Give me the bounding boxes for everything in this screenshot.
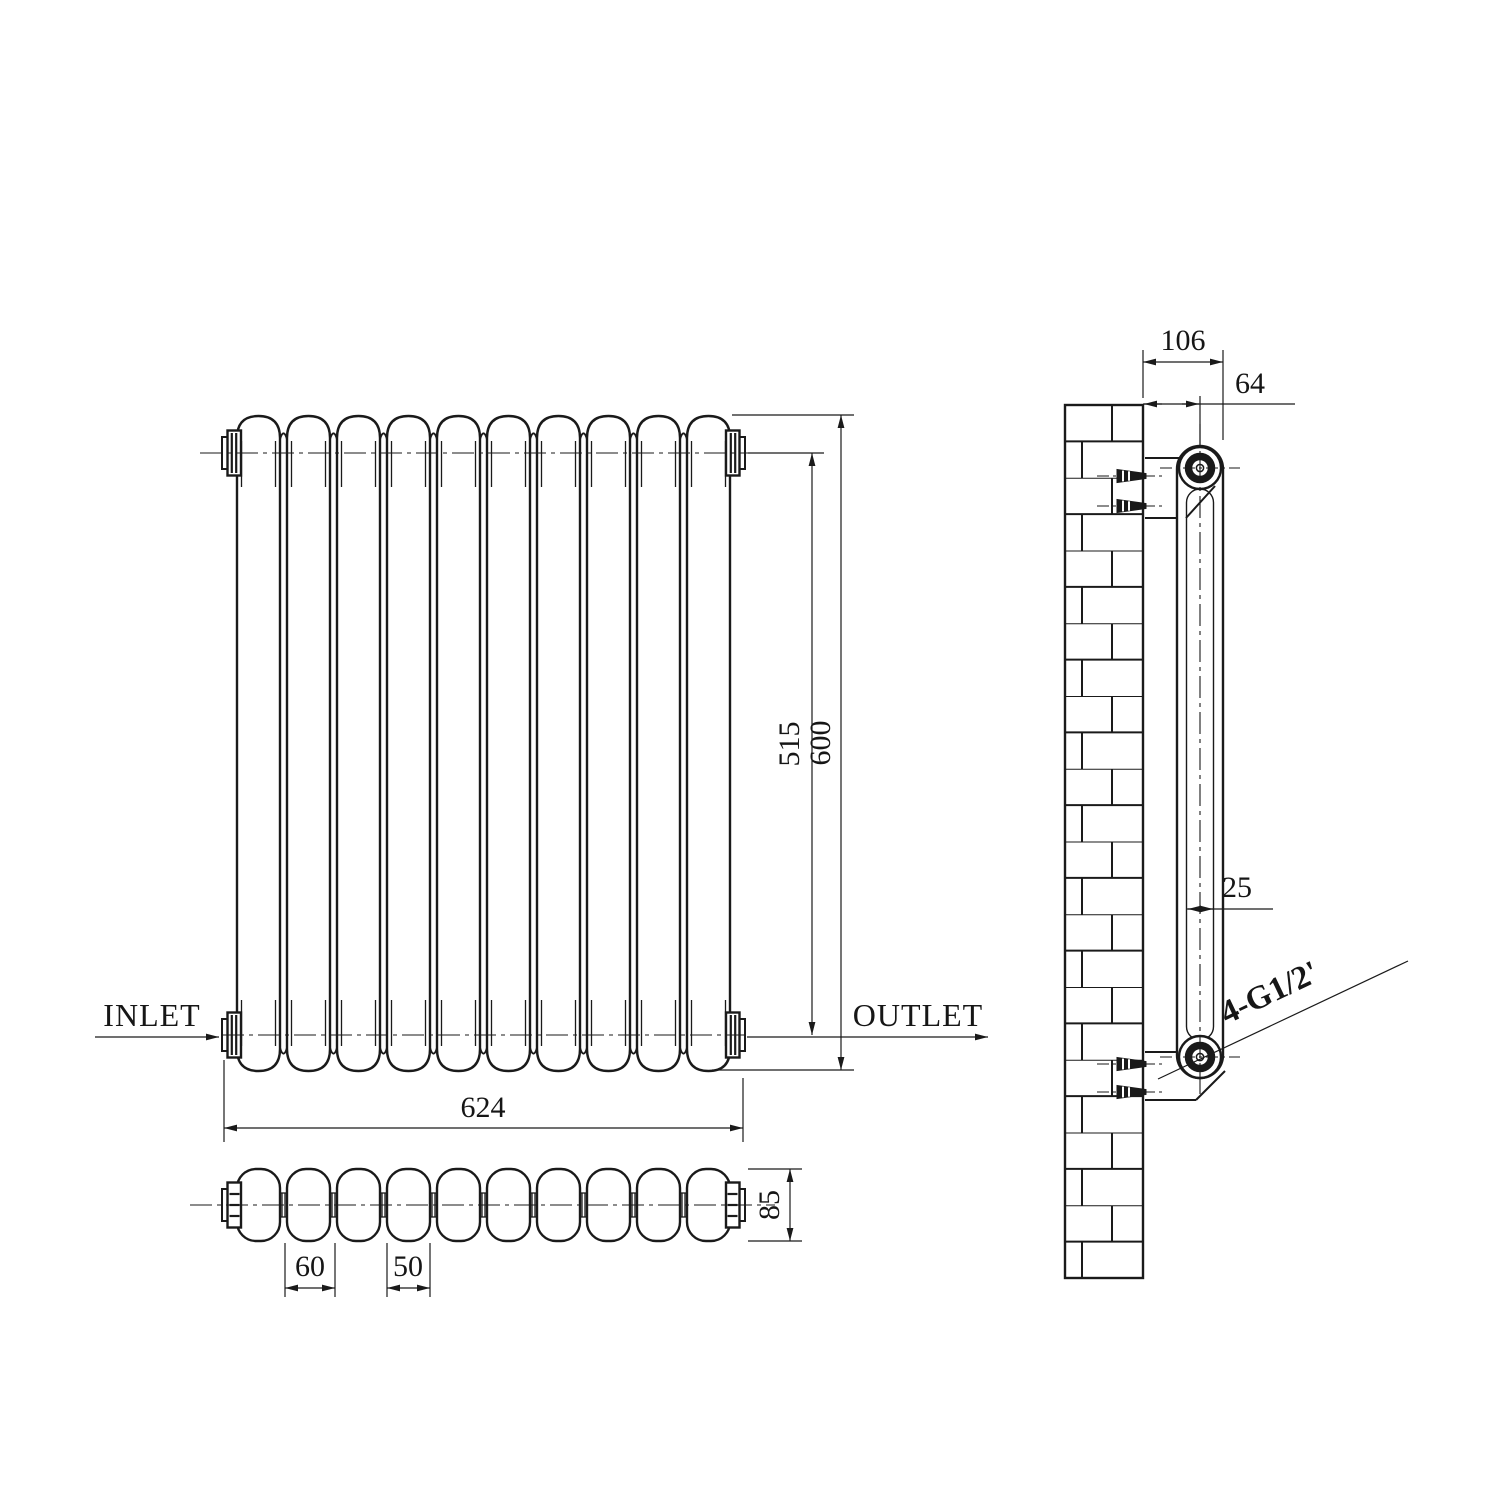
dim-515-text: 515 xyxy=(773,722,806,767)
dimension-pipe-offset: 64 xyxy=(1143,367,1295,446)
outlet-label: OUTLET xyxy=(853,997,983,1033)
dim-50-text: 50 xyxy=(393,1250,423,1283)
inlet-callout: INLET xyxy=(95,997,219,1037)
front-view: INLET OUTLET 624 600 515 xyxy=(95,415,988,1142)
radiator-column xyxy=(387,416,430,1071)
dim-106-text: 106 xyxy=(1161,324,1206,357)
radiator-column xyxy=(437,416,480,1071)
dimension-pipe-centers: 515 xyxy=(748,453,824,1035)
radiator-column xyxy=(637,416,680,1071)
side-view: 106 64 25 4-G1/2' xyxy=(1065,324,1408,1278)
front-columns xyxy=(237,416,730,1071)
dim-25-text: 25 xyxy=(1222,871,1252,904)
dimension-overall-width: 624 xyxy=(224,1060,743,1142)
brick-wall xyxy=(1065,405,1143,1278)
radiator-column xyxy=(487,416,530,1071)
dim-624-text: 624 xyxy=(461,1091,506,1124)
radiator-column xyxy=(587,416,630,1071)
top-view: 60 50 85 xyxy=(190,1169,802,1297)
radiator-technical-drawing: INLET OUTLET 624 600 515 xyxy=(0,0,1500,1500)
radiator-column xyxy=(687,416,730,1071)
inlet-label: INLET xyxy=(103,997,200,1033)
dimension-column-pitch: 60 xyxy=(285,1243,335,1297)
dimension-bracket-depth: 106 xyxy=(1143,324,1223,440)
radiator-column xyxy=(337,416,380,1071)
dim-600-text: 600 xyxy=(804,721,837,766)
dimension-depth: 85 xyxy=(748,1169,802,1241)
radiator-column xyxy=(237,416,280,1071)
technical-drawing-page: INLET OUTLET 624 600 515 xyxy=(0,0,1500,1500)
connection-size-label: 4-G1/2' xyxy=(1215,954,1325,1031)
radiator-column xyxy=(287,416,330,1071)
dim-85-text: 85 xyxy=(753,1190,786,1220)
dimension-column-width: 50 xyxy=(387,1243,430,1297)
outlet-callout: OUTLET xyxy=(747,997,988,1037)
dim-60-text: 60 xyxy=(295,1250,325,1283)
dim-64-text: 64 xyxy=(1235,367,1265,400)
radiator-column xyxy=(537,416,580,1071)
